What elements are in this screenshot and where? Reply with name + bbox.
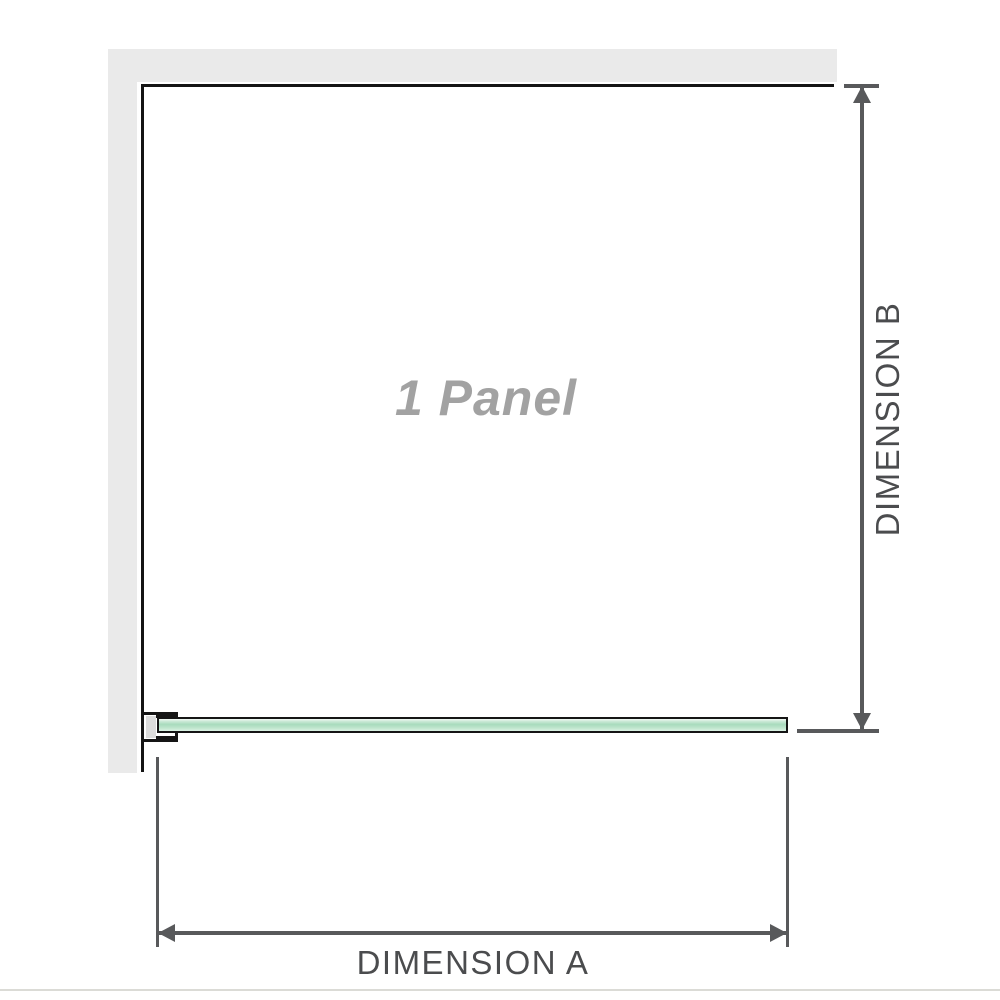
dimension-b-line bbox=[860, 87, 864, 731]
arrow-right-icon bbox=[770, 924, 787, 942]
dimension-a-line bbox=[158, 931, 787, 935]
arrow-down-icon bbox=[853, 713, 871, 730]
wall-bracket-arm-bottom bbox=[156, 736, 178, 742]
wall-edge-top-line bbox=[141, 84, 834, 87]
wall-edge-left-line bbox=[141, 84, 144, 772]
dimension-a-tick-right bbox=[786, 757, 789, 947]
panel-count-label: 1 Panel bbox=[286, 368, 686, 428]
wall-bracket-arm-top bbox=[156, 712, 178, 718]
wall-top-bar bbox=[108, 49, 837, 82]
page-divider-line bbox=[0, 989, 1000, 991]
dimension-b-label: DIMENSION B bbox=[870, 294, 906, 544]
glass-panel-bar bbox=[157, 717, 788, 733]
dimension-a-tick-left bbox=[156, 757, 159, 947]
arrow-up-icon bbox=[853, 86, 871, 103]
dimension-a-label: DIMENSION A bbox=[273, 944, 673, 982]
wall-bracket-pad bbox=[146, 716, 156, 738]
wall-left-bar bbox=[108, 49, 137, 773]
diagram-canvas: 1 Panel DIMENSION B DIMENSION A bbox=[0, 0, 1000, 1000]
arrow-left-icon bbox=[158, 924, 175, 942]
